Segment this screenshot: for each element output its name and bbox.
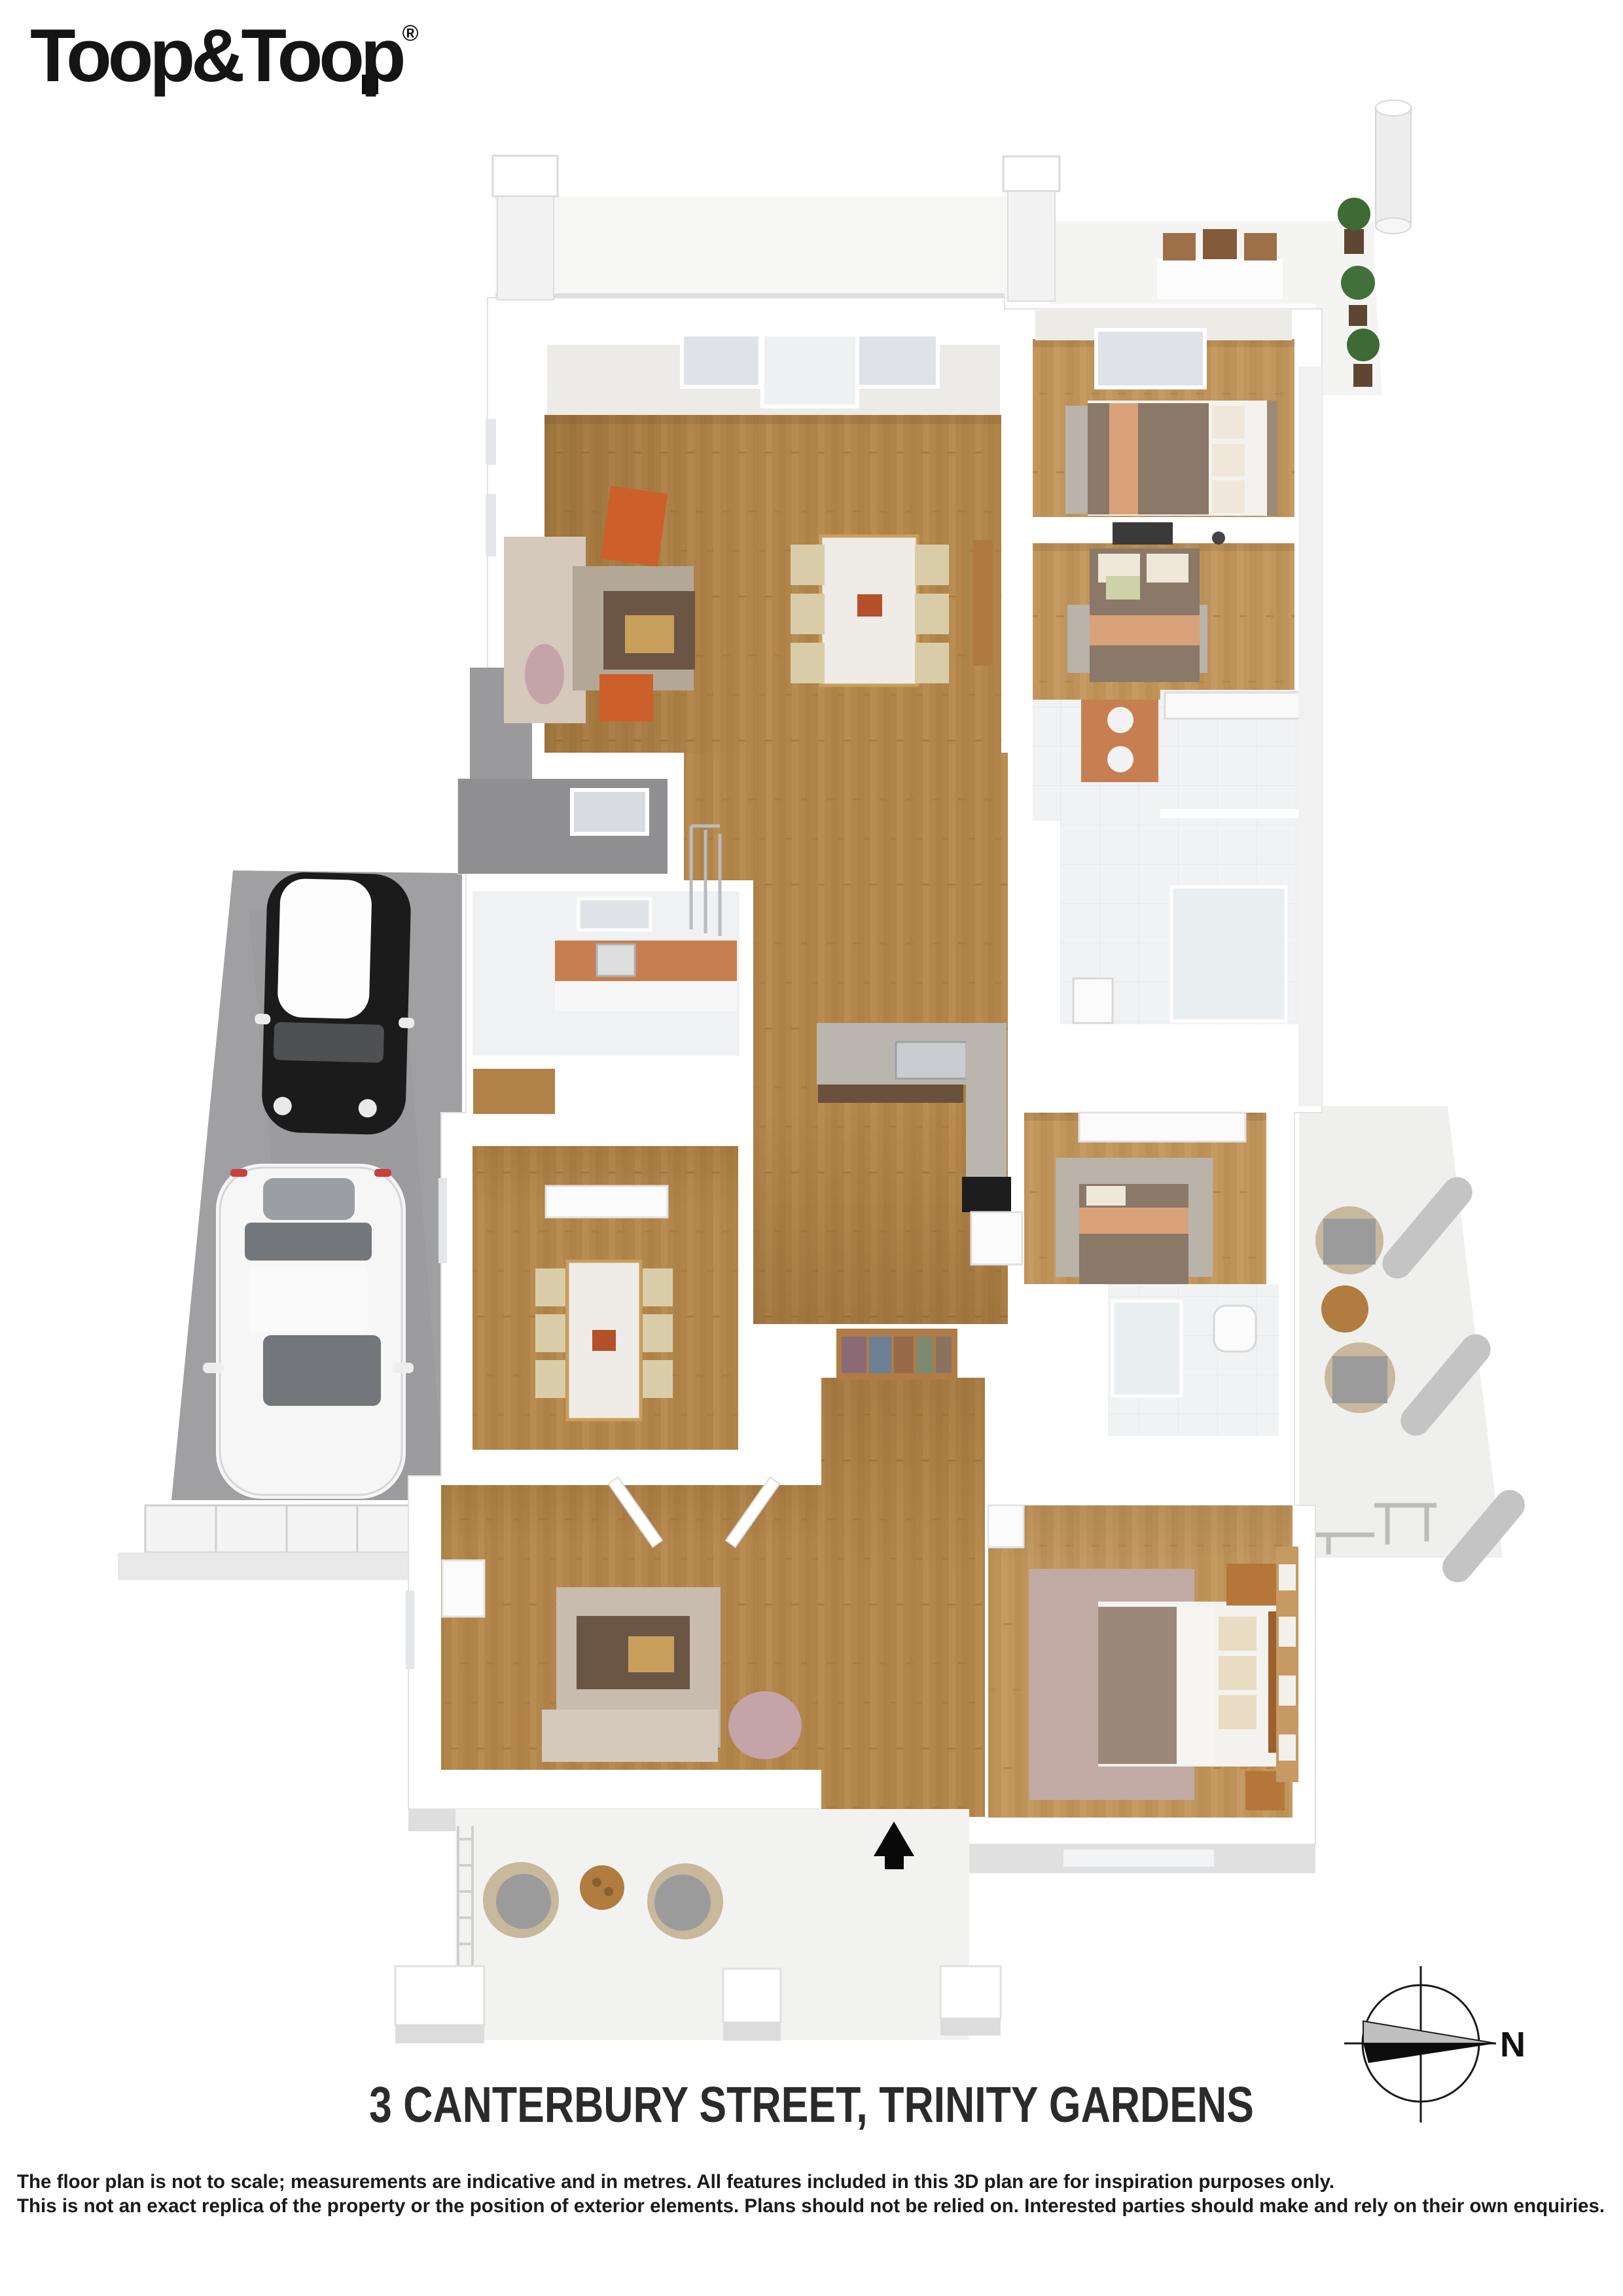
svg-text:N: N [1500, 2025, 1525, 2064]
